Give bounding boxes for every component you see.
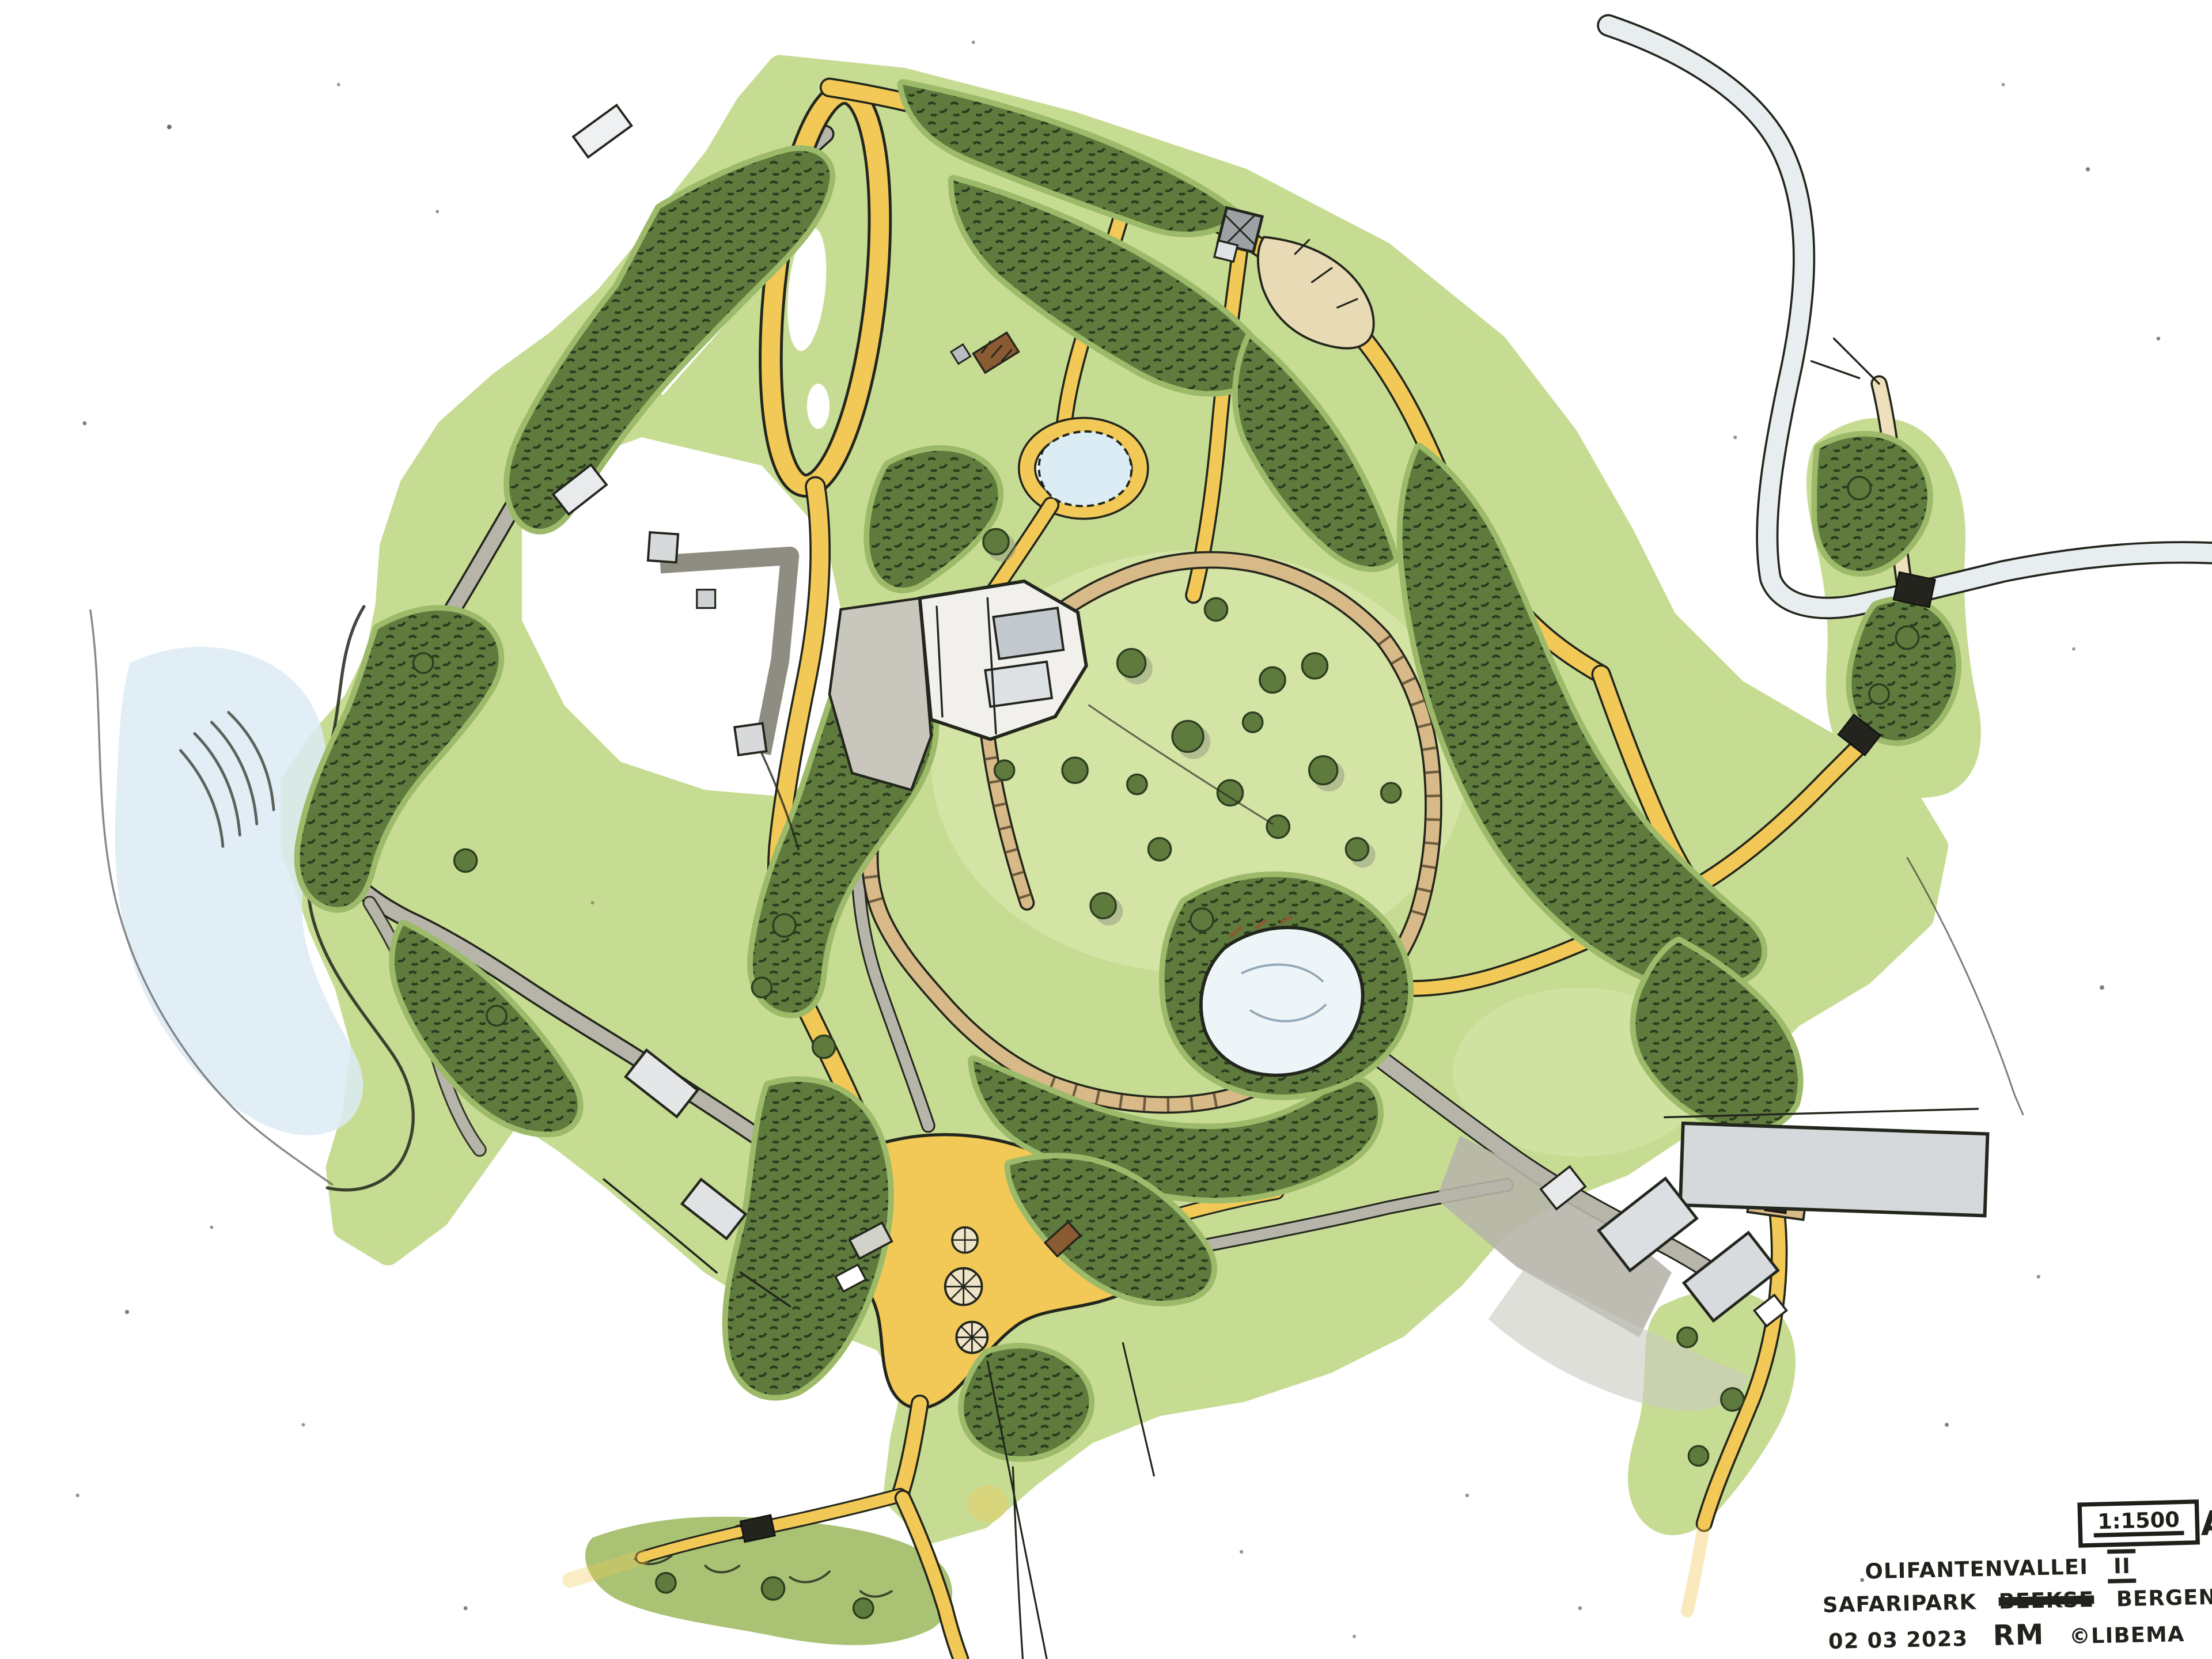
project-title: OLIFANTENVALLEIII (1865, 1549, 2137, 1589)
location-word2: BERGEN (2116, 1584, 2212, 1612)
small-pond-icon (1039, 431, 1131, 506)
shed-icon (573, 105, 631, 157)
fence-icon (1811, 339, 1879, 384)
lookout-annex (1214, 241, 1237, 262)
location-struck-word: BEEKSE (1998, 1587, 2094, 1615)
se-path-fade (1687, 1524, 1704, 1611)
sheet-letter: A (2200, 1503, 2212, 1544)
building-roof-1 (993, 608, 1063, 658)
barn-corner-1 (648, 532, 678, 562)
central-pond-icon (1201, 927, 1363, 1075)
worn-patch (968, 1486, 1007, 1522)
copyright-note: ©LIBEMA (2069, 1622, 2185, 1649)
parasol-icon (945, 1268, 982, 1305)
building-roof-2 (985, 662, 1052, 707)
site-plan-drawing (0, 0, 2212, 1659)
se-hall-icon (1680, 1123, 1988, 1215)
location-word1: SAFARIPARK (1823, 1589, 1977, 1618)
parasol-icon-3 (952, 1228, 978, 1253)
barn-mid (697, 590, 715, 608)
scale-box: 1:1500 (2077, 1499, 2200, 1548)
scale-value: 1:1500 (2093, 1509, 2184, 1538)
site-plan-canvas: 1:1500 A OLIFANTENVALLEIII SAFARIPARK BE… (0, 0, 2212, 1659)
parasol-icon-2 (956, 1322, 987, 1353)
project-name: OLIFANTENVALLEI (1865, 1554, 2088, 1584)
barn-corner-2 (734, 724, 766, 755)
site-plan-sheet: 1:1500 A OLIFANTENVALLEIII SAFARIPARK BE… (0, 0, 2212, 1659)
phase-numeral: II (2108, 1549, 2137, 1584)
drawing-date: 02 03 2023 (1828, 1626, 1968, 1654)
author-initials: RM (1993, 1618, 2044, 1653)
loop-island-2 (807, 384, 829, 429)
